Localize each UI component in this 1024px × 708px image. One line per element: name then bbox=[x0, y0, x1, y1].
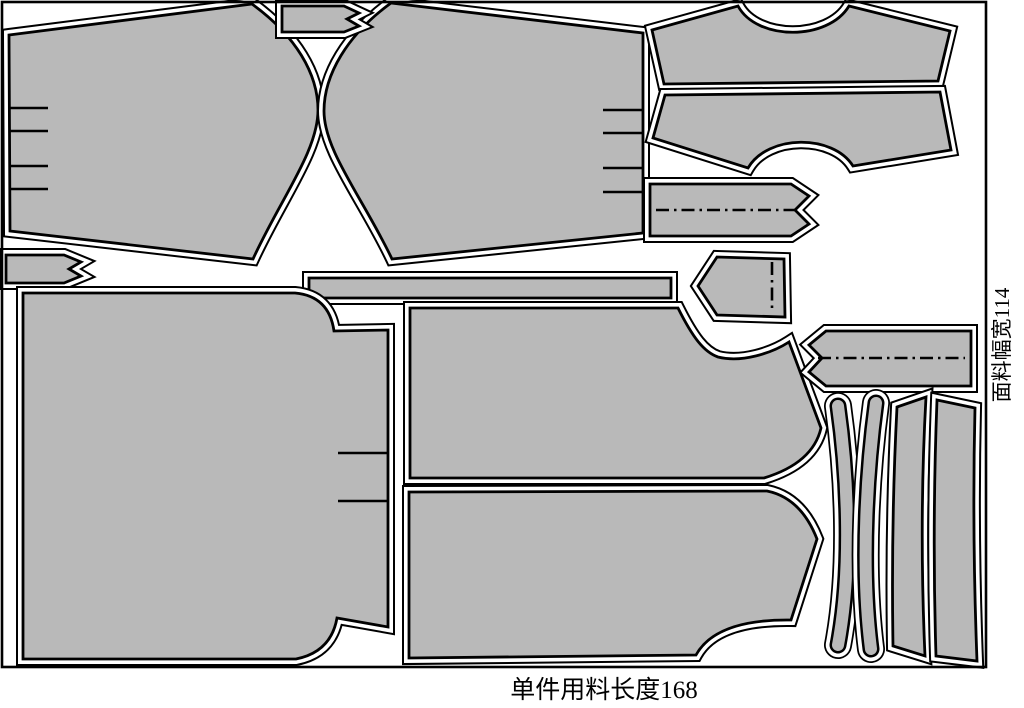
piece-shape bbox=[934, 400, 977, 661]
piece-shape bbox=[324, 3, 643, 259]
piece-large-panel-left bbox=[23, 293, 388, 659]
piece-length-label: 单件用料长度168 bbox=[510, 676, 698, 704]
piece-large-top-left bbox=[9, 4, 318, 259]
piece-small-tab-left bbox=[6, 255, 81, 283]
piece-shape bbox=[893, 397, 927, 656]
fabric-width-label: 面料幅宽114 bbox=[990, 287, 1014, 402]
piece-shape bbox=[282, 6, 359, 32]
piece-shape bbox=[309, 278, 671, 298]
piece-curved-sliver-2 bbox=[866, 403, 876, 649]
piece-pentagon-tab bbox=[698, 257, 785, 317]
piece-curved-sliver-1 bbox=[838, 406, 847, 645]
piece-large-top-center bbox=[324, 3, 643, 259]
piece-small-tab-top bbox=[282, 6, 359, 32]
piece-shape bbox=[6, 255, 81, 283]
marker-diagram: 面料幅宽114 单件用料长度168 bbox=[0, 0, 1024, 708]
piece-narrow-strip-1 bbox=[893, 397, 927, 656]
piece-band-dashdot-1 bbox=[650, 184, 809, 236]
piece-band-dashdot-2 bbox=[809, 331, 971, 386]
piece-long-thin-strip bbox=[309, 278, 671, 298]
piece-narrow-strip-2 bbox=[934, 400, 977, 661]
piece-shape bbox=[23, 293, 388, 659]
piece-shape bbox=[9, 4, 318, 259]
